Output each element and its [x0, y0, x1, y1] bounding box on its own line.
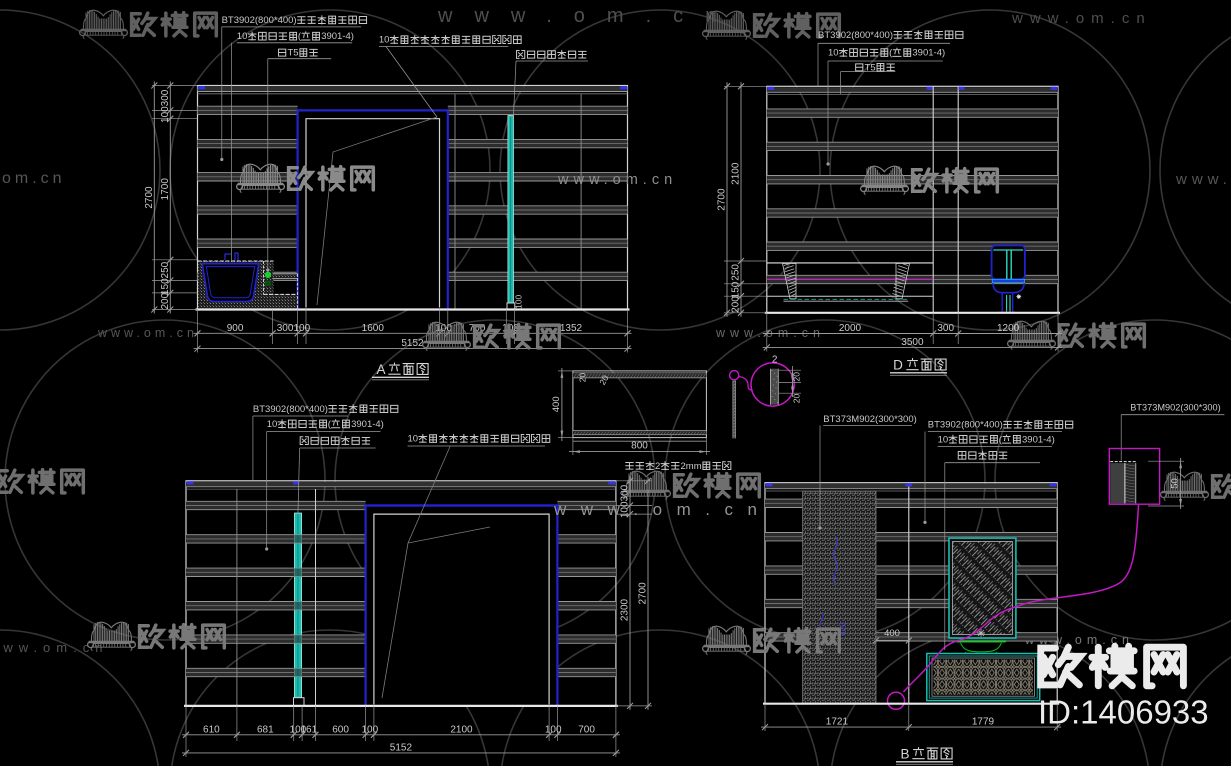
svg-text:300: 300	[160, 89, 171, 106]
svg-text:www.om.cn: www.om.cn	[553, 500, 771, 519]
svg-text:5152: 5152	[390, 742, 413, 753]
svg-text:300: 300	[277, 323, 294, 334]
svg-text:BT3902(800*400): BT3902(800*400)	[253, 404, 328, 415]
svg-text:A: A	[376, 362, 385, 377]
svg-text:1600: 1600	[362, 323, 385, 334]
svg-text:3901-4): 3901-4)	[912, 48, 945, 59]
svg-text:D: D	[893, 358, 903, 373]
svg-text:10: 10	[938, 434, 949, 445]
svg-text:ID:1406933: ID:1406933	[1038, 694, 1209, 731]
svg-text:10: 10	[267, 419, 278, 430]
svg-text:2: 2	[655, 461, 660, 472]
svg-text:20: 20	[792, 394, 802, 404]
svg-text:1352: 1352	[560, 323, 583, 334]
svg-text:2100: 2100	[450, 724, 473, 735]
svg-text:10: 10	[408, 434, 419, 445]
svg-text:10: 10	[237, 31, 248, 42]
svg-text:610: 610	[203, 724, 220, 735]
svg-text:BT3902(800*400): BT3902(800*400)	[222, 15, 297, 26]
svg-text:www.om.cn: www.om.cn	[1011, 10, 1152, 27]
svg-text:100: 100	[293, 323, 310, 334]
svg-text:1700: 1700	[160, 178, 171, 201]
svg-text:200: 200	[160, 292, 171, 309]
svg-text:2700: 2700	[638, 582, 649, 605]
svg-text:BT373M902(300*300): BT373M902(300*300)	[1130, 403, 1220, 413]
svg-text:150: 150	[160, 278, 171, 295]
svg-text:om.cn: om.cn	[2, 170, 66, 187]
svg-text:400: 400	[884, 628, 900, 639]
svg-text:50: 50	[1170, 478, 1181, 489]
svg-text:10: 10	[828, 48, 839, 59]
svg-text:BT3902(800*400): BT3902(800*400)	[928, 420, 1003, 431]
svg-text:www.om.cn: www.om.cn	[715, 326, 825, 340]
svg-text:161: 161	[300, 724, 317, 735]
svg-text:BT3902(800*400): BT3902(800*400)	[818, 30, 893, 41]
svg-text:www.om.cn: www.om.cn	[437, 5, 738, 27]
svg-text:400: 400	[551, 396, 562, 412]
svg-text:5152: 5152	[401, 338, 424, 349]
svg-text:20: 20	[792, 372, 802, 382]
svg-text:3901-4): 3901-4)	[351, 419, 384, 430]
svg-text:600: 600	[332, 724, 349, 735]
svg-text:2700: 2700	[717, 188, 728, 211]
svg-text:700: 700	[578, 724, 595, 735]
svg-text:T5: T5	[288, 48, 299, 59]
svg-text:100: 100	[545, 724, 562, 735]
svg-text:100: 100	[160, 106, 171, 123]
svg-text:20: 20	[578, 373, 588, 383]
svg-text:300: 300	[620, 484, 631, 501]
svg-text:1779: 1779	[972, 717, 995, 728]
svg-text:100: 100	[361, 724, 378, 735]
svg-text:2mm: 2mm	[681, 461, 702, 472]
svg-text:1721: 1721	[826, 717, 849, 728]
svg-text:3500: 3500	[901, 337, 924, 348]
svg-text:800: 800	[631, 441, 648, 452]
svg-text:300: 300	[937, 323, 954, 334]
svg-text:100: 100	[514, 295, 524, 309]
svg-text:3901-4): 3901-4)	[321, 31, 354, 42]
svg-text:10: 10	[379, 35, 390, 46]
svg-text:2000: 2000	[839, 323, 862, 334]
svg-text:2300: 2300	[620, 598, 631, 621]
svg-text:www.om.cn: www.om.cn	[97, 326, 198, 340]
svg-text:250: 250	[160, 261, 171, 278]
svg-text:200: 200	[731, 296, 742, 313]
svg-text:BT373M902(300*300): BT373M902(300*300)	[823, 414, 916, 425]
svg-text:www.om.cn: www.om.cn	[1175, 171, 1231, 188]
svg-text:2: 2	[772, 355, 778, 366]
svg-text:681: 681	[257, 724, 274, 735]
svg-text:150: 150	[731, 281, 742, 298]
svg-text:250: 250	[731, 264, 742, 281]
svg-text:2100: 2100	[731, 162, 742, 185]
svg-text:3901-4): 3901-4)	[1022, 434, 1055, 445]
svg-text:B: B	[900, 747, 909, 762]
svg-text:1200: 1200	[997, 323, 1020, 334]
svg-text:2700: 2700	[144, 186, 155, 209]
svg-text:www.om.cn: www.om.cn	[557, 172, 677, 188]
svg-text:900: 900	[227, 323, 244, 334]
